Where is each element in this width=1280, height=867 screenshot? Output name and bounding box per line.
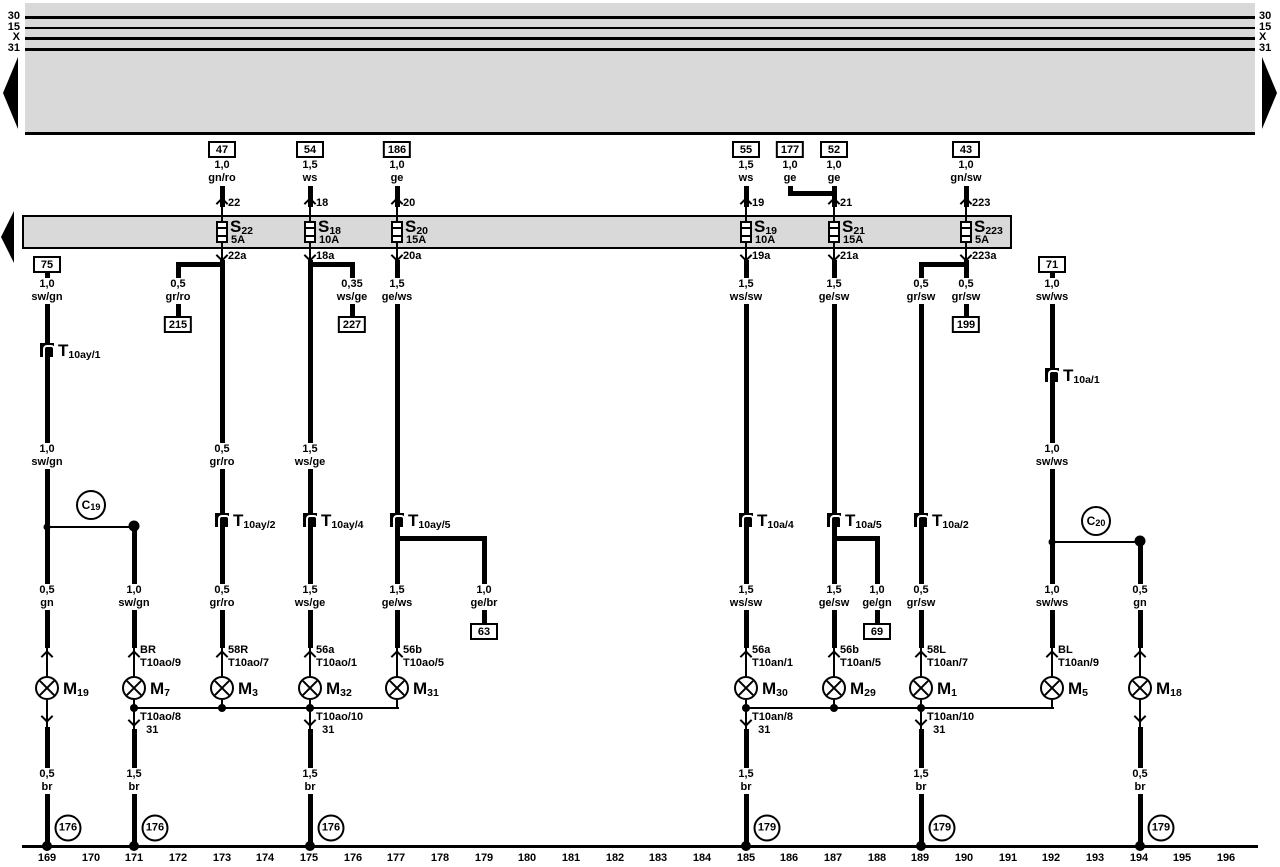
fuse-icon	[828, 221, 840, 243]
connector-name: T10ay/1	[58, 342, 101, 362]
wire-label: 1,0 sw/gn	[115, 584, 152, 610]
wire	[875, 536, 880, 625]
arrow-up-icon	[1134, 650, 1147, 663]
connector-icon	[739, 513, 753, 527]
grid-number: 172	[169, 853, 187, 864]
grid-number: 187	[824, 853, 842, 864]
connector-name: T10ay/5	[408, 512, 451, 532]
arrow-up-icon	[304, 650, 317, 663]
connector-icon	[303, 513, 317, 527]
bus-line-30	[25, 16, 1255, 19]
bulb-m19-icon	[35, 676, 59, 700]
wire	[832, 536, 880, 541]
bulb-name: M30	[762, 680, 788, 700]
grid-number: 177	[387, 853, 405, 864]
wire-label: 1,0 sw/ws	[1033, 443, 1071, 469]
bulb-m3-icon	[210, 676, 234, 700]
fuse-amp: 5A	[231, 234, 245, 247]
grid-number: 171	[125, 853, 143, 864]
terminal-box-186: 186	[383, 141, 411, 158]
arrow-up-icon	[740, 197, 753, 210]
terminal-box-69: 69	[863, 623, 891, 640]
bus-line-15	[25, 27, 1255, 30]
continuation-arrow-right-icon	[1262, 57, 1277, 129]
terminal-number: 22	[228, 197, 240, 210]
arrow-down-icon	[41, 710, 54, 723]
ground-point: 176	[55, 815, 82, 842]
terminal-number: 18a	[316, 250, 334, 263]
wire-label: 1,0 gn/sw	[947, 159, 984, 185]
bulb-name: M5	[1068, 680, 1088, 700]
wire-label: 1,5 ws/sw	[727, 278, 765, 304]
terminal-number: 19	[752, 197, 764, 210]
terminal-number: 20a	[403, 250, 421, 263]
connector-icon	[1045, 368, 1059, 382]
grid-number: 183	[649, 853, 667, 864]
grid-number: 169	[38, 853, 56, 864]
terminal-box-47: 47	[208, 141, 236, 158]
ground-point: 179	[929, 815, 956, 842]
wire-label: 1,0 sw/ws	[1033, 584, 1071, 610]
grid-number: 174	[256, 853, 274, 864]
terminal-number: 20	[403, 197, 415, 210]
grid-number: 191	[999, 853, 1017, 864]
wire-label: 1,5 br	[910, 768, 931, 794]
arrow-down-icon	[128, 714, 141, 727]
bus-line-31	[25, 48, 1255, 51]
wire-label: 0,5 gr/ro	[206, 584, 237, 610]
wire-label: 0,5 gr/sw	[904, 278, 939, 304]
terminal-box-43: 43	[952, 141, 980, 158]
bulb-m18-icon	[1128, 676, 1152, 700]
bulb-m5-icon	[1040, 676, 1064, 700]
junction-dot	[218, 704, 226, 712]
bulb-name: M1	[937, 680, 957, 700]
fuse-icon	[391, 221, 403, 243]
terminal-number: 223a	[972, 250, 996, 263]
terminal-box-55: 55	[732, 141, 760, 158]
continuation-arrow-fusebar-icon	[1, 211, 14, 263]
junction-dot	[44, 523, 51, 530]
terminal-box-199: 199	[952, 316, 980, 333]
terminal-box-75: 75	[33, 256, 61, 273]
arrow-up-icon	[304, 197, 317, 210]
ground-point: 176	[142, 815, 169, 842]
wire-label: 1,5 br	[299, 768, 320, 794]
grid-number: 188	[868, 853, 886, 864]
pin-tag: T10an/10 31	[927, 711, 974, 736]
coupling-c20: C20	[1081, 506, 1111, 536]
pin-tag: 56a T10ao/1	[316, 644, 357, 669]
bulb-m29-icon	[822, 676, 846, 700]
wire-label: 1,5 ge/sw	[816, 584, 853, 610]
wire-label: 1,5 br	[735, 768, 756, 794]
arrow-up-icon	[828, 197, 841, 210]
arrow-up-icon	[740, 650, 753, 663]
wire-label: 0,5 br	[1129, 768, 1150, 794]
pin-tag: T10ao/10 31	[316, 711, 363, 736]
arrow-up-icon	[391, 197, 404, 210]
arrow-up-icon	[1046, 650, 1059, 663]
bulb-m31-icon	[385, 676, 409, 700]
wire-label: 1,0 ge/br	[468, 584, 501, 610]
wire-label: 1,5 ws/ge	[292, 443, 329, 469]
ground-point: 179	[1148, 815, 1175, 842]
wire-label: 1,0 sw/gn	[28, 278, 65, 304]
connector-name: T10a/1	[1063, 367, 1100, 387]
arrow-up-icon	[216, 650, 229, 663]
fuse-amp: 15A	[843, 234, 863, 247]
connector-icon	[390, 513, 404, 527]
wire-label: 0,5 gn	[36, 584, 57, 610]
grid-number: 184	[693, 853, 711, 864]
terminal-box-71: 71	[1038, 256, 1066, 273]
wire-label: 0,5 gn	[1129, 584, 1150, 610]
wire	[47, 526, 134, 528]
arrow-down-icon	[1134, 710, 1147, 723]
connector-name: T10ay/4	[321, 512, 364, 532]
wire-label: 1,5 ws/sw	[727, 584, 765, 610]
ground-point: 176	[318, 815, 345, 842]
junction-dot	[1049, 538, 1056, 545]
bulb-m7-icon	[122, 676, 146, 700]
grid-number: 196	[1217, 853, 1235, 864]
bulb-m30-icon	[734, 676, 758, 700]
connector-name: T10a/5	[845, 512, 882, 532]
grid-number: 192	[1042, 853, 1060, 864]
junction-dot	[830, 704, 838, 712]
grid-number: 176	[344, 853, 362, 864]
wire	[482, 536, 487, 625]
connector-name: T10ay/2	[233, 512, 276, 532]
grid-number: 185	[737, 853, 755, 864]
pin-tag: 58R T10ao/7	[228, 644, 269, 669]
pin-tag: 56a T10an/1	[752, 644, 793, 669]
arrow-down-icon	[740, 714, 753, 727]
pin-tag: BR T10ao/9	[140, 644, 181, 669]
connector-name: T10a/4	[757, 512, 794, 532]
fuse-icon	[740, 221, 752, 243]
fuse-amp: 10A	[755, 234, 775, 247]
ground-point: 179	[754, 815, 781, 842]
terminal-box-215: 215	[164, 316, 192, 333]
wire	[395, 536, 487, 541]
wire-label: 0,5 gr/sw	[949, 278, 984, 304]
terminal-box-177: 177	[776, 141, 804, 158]
wire-label: 0,35 ws/ge	[334, 278, 371, 304]
grid-number: 190	[955, 853, 973, 864]
grid-number: 193	[1086, 853, 1104, 864]
grid-number: 189	[911, 853, 929, 864]
pin-tag: 58L T10an/7	[927, 644, 968, 669]
grid-number: 180	[518, 853, 536, 864]
bottom-rail	[22, 845, 1258, 848]
arrow-up-icon	[41, 650, 54, 663]
wire-label: 0,5 gr/ro	[162, 278, 193, 304]
wire-label: 1,5 ws/ge	[292, 584, 329, 610]
arrow-up-icon	[828, 650, 841, 663]
bus-label-left-31: 31	[0, 43, 20, 54]
pin-tag: 56b T10an/5	[840, 644, 881, 669]
bulb-name: M3	[238, 680, 258, 700]
wire-label: 1,5 ws	[735, 159, 756, 185]
connector-icon	[827, 513, 841, 527]
wire	[133, 707, 399, 710]
fuse-amp: 15A	[406, 234, 426, 247]
grid-number: 178	[431, 853, 449, 864]
grid-number: 170	[82, 853, 100, 864]
terminal-box-227: 227	[338, 316, 366, 333]
bulb-m32-icon	[298, 676, 322, 700]
wire	[919, 262, 969, 267]
grid-number: 179	[475, 853, 493, 864]
wire-label: 1,0 sw/ws	[1033, 278, 1071, 304]
grid-number: 186	[780, 853, 798, 864]
terminal-number: 21a	[840, 250, 858, 263]
arrow-up-icon	[216, 197, 229, 210]
wire-label: 1,5 ge/sw	[816, 278, 853, 304]
junction-dot	[129, 521, 140, 532]
connector-icon	[215, 513, 229, 527]
pin-tag: BL T10an/9	[1058, 644, 1099, 669]
grid-number: 175	[300, 853, 318, 864]
terminal-number: 19a	[752, 250, 770, 263]
arrow-up-icon	[915, 650, 928, 663]
bulb-name: M18	[1156, 680, 1182, 700]
wire	[745, 707, 1054, 710]
bulb-m1-icon	[909, 676, 933, 700]
wire-label: 1,0 ge	[823, 159, 844, 185]
grid-number: 181	[562, 853, 580, 864]
arrow-up-icon	[128, 650, 141, 663]
terminal-number: 223	[972, 197, 990, 210]
arrow-up-icon	[391, 650, 404, 663]
pin-tag: 56b T10ao/5	[403, 644, 444, 669]
arrow-down-icon	[915, 714, 928, 727]
wire-label: 1,0 gn/ro	[205, 159, 239, 185]
terminal-number: 22a	[228, 250, 246, 263]
grid-number: 182	[606, 853, 624, 864]
wire-label: 1,0 ge	[386, 159, 407, 185]
arrow-up-icon	[960, 197, 973, 210]
arrow-down-icon	[304, 714, 317, 727]
wire-label: 0,5 gr/sw	[904, 584, 939, 610]
bus-label-right-31: 31	[1259, 43, 1279, 54]
connector-icon	[914, 513, 928, 527]
terminal-box-63: 63	[470, 623, 498, 640]
wire	[308, 262, 355, 267]
terminal-box-52: 52	[820, 141, 848, 158]
wire-label: 1,5 ge/ws	[379, 278, 416, 304]
fuse-icon	[304, 221, 316, 243]
connector-icon	[40, 343, 54, 357]
grid-number: 173	[213, 853, 231, 864]
terminal-number: 18	[316, 197, 328, 210]
coupling-c19: C19	[76, 490, 106, 520]
wire-label: 1,5 ge/ws	[379, 584, 416, 610]
fuse-icon	[960, 221, 972, 243]
grid-number: 194	[1130, 853, 1148, 864]
wire-label: 1,0 ge/gn	[859, 584, 894, 610]
wire	[1052, 541, 1140, 543]
bulb-name: M31	[413, 680, 439, 700]
wire-label: 0,5 gr/ro	[206, 443, 237, 469]
fuse-icon	[216, 221, 228, 243]
bulb-name: M29	[850, 680, 876, 700]
pin-tag: T10ao/8 31	[140, 711, 181, 736]
junction-dot	[1135, 536, 1146, 547]
bulb-name: M7	[150, 680, 170, 700]
connector-name: T10a/2	[932, 512, 969, 532]
wire-label: 1,5 br	[123, 768, 144, 794]
fuse-amp: 5A	[975, 234, 989, 247]
wire-label: 1,0 sw/gn	[28, 443, 65, 469]
bulb-name: M32	[326, 680, 352, 700]
bulb-name: M19	[63, 680, 89, 700]
wiring-diagram: 30 15 X 31 30 15 X 31 47 1,0 gn/ro 54 1,…	[0, 0, 1280, 867]
wire-label: 0,5 br	[36, 768, 57, 794]
terminal-box-54: 54	[296, 141, 324, 158]
bus-line-x	[25, 37, 1255, 40]
fuse-amp: 10A	[319, 234, 339, 247]
bus-band	[25, 3, 1255, 135]
wire-label: 1,5 ws	[299, 159, 320, 185]
wire	[788, 191, 837, 196]
pin-tag: T10an/8 31	[752, 711, 793, 736]
terminal-number: 21	[840, 197, 852, 210]
wire-label: 1,0 ge	[779, 159, 800, 185]
continuation-arrow-left-icon	[3, 57, 18, 129]
wire	[176, 262, 225, 267]
grid-number: 195	[1173, 853, 1191, 864]
